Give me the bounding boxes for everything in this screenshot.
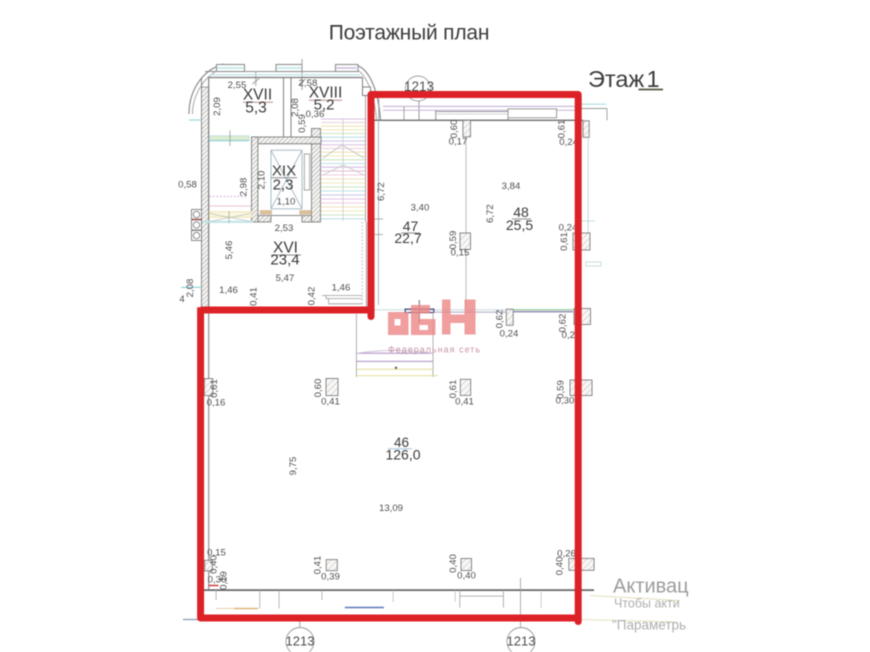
svg-text:0,39: 0,39 <box>321 572 340 583</box>
svg-text:Активац: Активац <box>613 576 689 598</box>
svg-text:0,40: 0,40 <box>208 555 219 574</box>
svg-text:23,4: 23,4 <box>270 252 299 269</box>
svg-text:0,16: 0,16 <box>207 398 226 409</box>
svg-text:0,36: 0,36 <box>306 109 325 120</box>
svg-text:0,19: 0,19 <box>219 571 230 590</box>
svg-text:2,58: 2,58 <box>299 78 318 89</box>
svg-text:0,40: 0,40 <box>457 571 476 582</box>
svg-text:Чтобы акти: Чтобы акти <box>614 597 680 611</box>
svg-text:0,15: 0,15 <box>451 248 470 259</box>
svg-text:2,10: 2,10 <box>257 171 268 190</box>
svg-text:2,08: 2,08 <box>185 279 196 298</box>
svg-text:0,59: 0,59 <box>297 114 308 133</box>
svg-text:2,08: 2,08 <box>290 98 301 117</box>
svg-text:1213: 1213 <box>507 634 536 649</box>
svg-text:1,46: 1,46 <box>219 285 238 296</box>
svg-text:0,24: 0,24 <box>500 329 519 340</box>
svg-text:0,40: 0,40 <box>555 557 566 576</box>
svg-text:2,09: 2,09 <box>212 97 223 116</box>
svg-text:"Параметрь: "Параметрь <box>612 618 686 633</box>
svg-text:2,3: 2,3 <box>273 177 294 194</box>
svg-text:4: 4 <box>179 294 185 305</box>
svg-text:13,09: 13,09 <box>379 503 403 514</box>
svg-text:5,46: 5,46 <box>224 241 235 260</box>
svg-text:Федеральная сеть: Федеральная сеть <box>388 345 481 355</box>
svg-text:2,53: 2,53 <box>275 223 294 234</box>
svg-text:0,41: 0,41 <box>249 287 260 306</box>
svg-text:5,47: 5,47 <box>276 273 295 284</box>
svg-text:0,61: 0,61 <box>556 120 567 139</box>
svg-text:0,41: 0,41 <box>455 397 474 408</box>
svg-text:0,58: 0,58 <box>178 180 197 191</box>
svg-text:1,10: 1,10 <box>277 197 296 208</box>
svg-text:3,84: 3,84 <box>502 181 521 192</box>
svg-text:126,0: 126,0 <box>385 447 420 463</box>
svg-text:0,61: 0,61 <box>559 232 570 251</box>
svg-text:1213: 1213 <box>286 634 315 649</box>
svg-text:6,72: 6,72 <box>376 182 387 201</box>
svg-text:25,5: 25,5 <box>506 217 533 233</box>
svg-text:5,3: 5,3 <box>245 100 267 117</box>
svg-text:Этаж: Этаж <box>588 66 644 92</box>
svg-text:Поэтажный план: Поэтажный план <box>329 22 490 45</box>
svg-text:22,7: 22,7 <box>394 230 421 246</box>
svg-text:1: 1 <box>647 66 660 92</box>
svg-text:2,55: 2,55 <box>228 80 247 91</box>
svg-text:3,40: 3,40 <box>411 202 430 213</box>
svg-text:2,98: 2,98 <box>239 178 250 197</box>
svg-text:0,41: 0,41 <box>321 397 340 408</box>
svg-text:0,17: 0,17 <box>449 137 468 148</box>
svg-text:0,60: 0,60 <box>313 379 324 398</box>
svg-text:1,46: 1,46 <box>332 283 351 294</box>
svg-text:0,42: 0,42 <box>307 287 318 306</box>
svg-text:9,75: 9,75 <box>288 457 299 476</box>
svg-text:0,61: 0,61 <box>209 379 220 398</box>
svg-text:0,30: 0,30 <box>556 396 575 407</box>
svg-text:6,72: 6,72 <box>485 204 496 223</box>
